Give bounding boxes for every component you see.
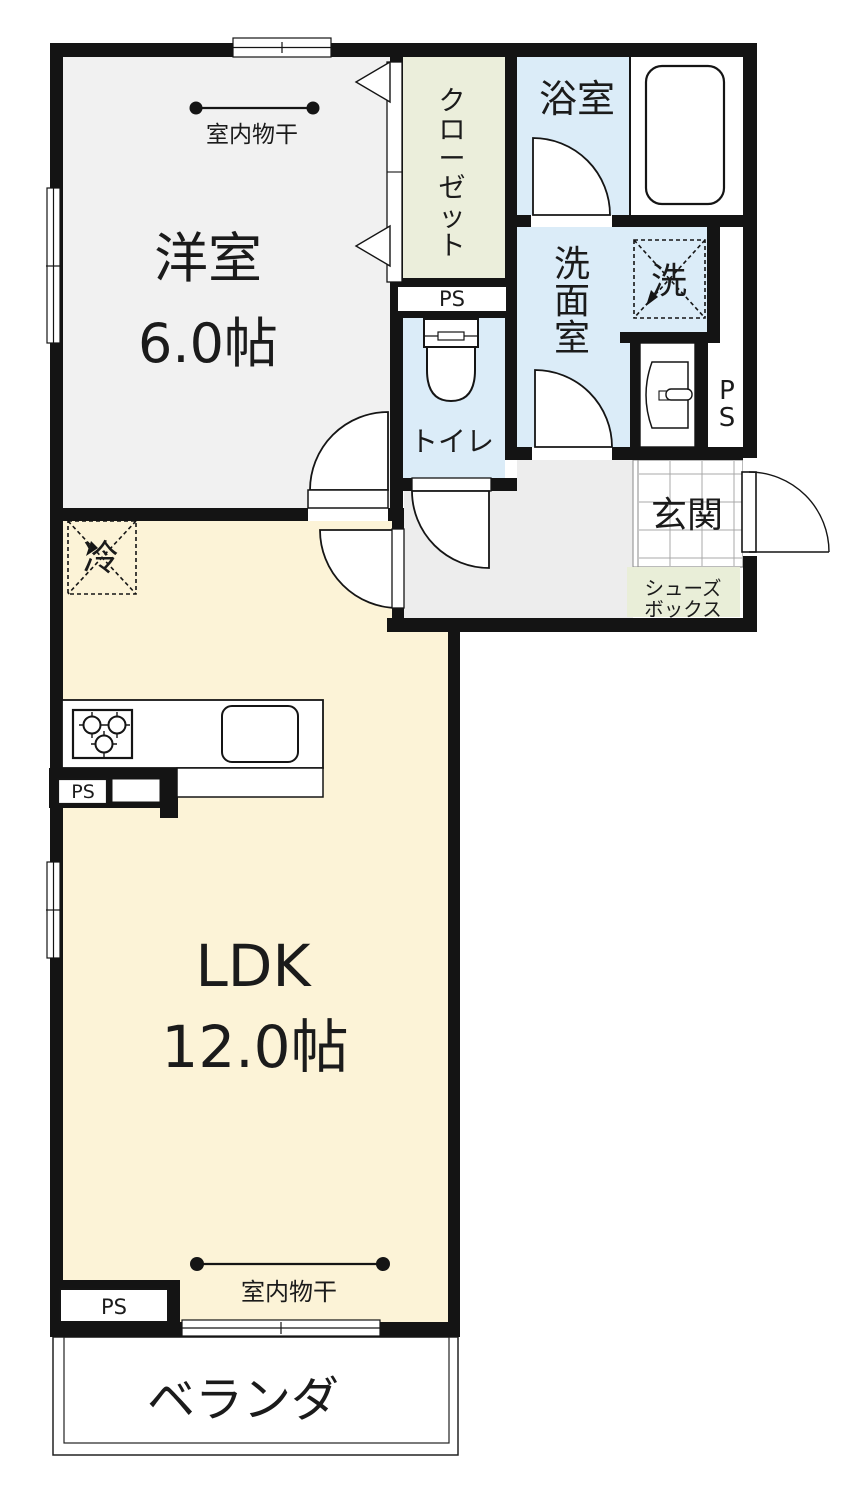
drying-top-label: 室内物干 <box>206 122 298 148</box>
wall-washroom-right <box>707 227 720 343</box>
entrance-step-lines <box>633 460 638 567</box>
floor-plan-svg: 洋室 6.0帖 室内物干 浴室 ク ロ ー ゼ ッ ト 洗 面 室 洗 PS P… <box>0 0 863 1500</box>
bath-door-threshold <box>531 215 612 227</box>
closet-char-5: ッ <box>439 202 466 233</box>
washroom-char-1: 洗 <box>554 244 590 285</box>
wall-vanity-right <box>695 343 708 447</box>
ldk-size-label: 12.0帖 <box>161 1013 348 1081</box>
washroom-label-vertical: 洗 面 室 <box>554 244 590 359</box>
ps-shaft-s-label: S <box>719 403 736 433</box>
wall-kitchen-stub-v <box>160 768 178 818</box>
bedroom-door-threshold <box>308 508 388 521</box>
fridge-label: 冷 <box>83 538 119 579</box>
toilet-label: トイレ <box>410 425 494 458</box>
veranda-label: ベランダ <box>147 1372 339 1428</box>
bedroom-name-label: 洋室 <box>154 227 262 290</box>
closet-char-4: ゼ <box>439 173 466 204</box>
floor-plan-page: 洋室 6.0帖 室内物干 浴室 ク ロ ー ゼ ッ ト 洗 面 室 洗 PS P… <box>0 0 863 1500</box>
wall-top <box>50 43 757 57</box>
closet-char-6: ト <box>439 231 466 262</box>
closet-char-2: ロ <box>439 115 466 146</box>
vanity-icon <box>640 343 695 447</box>
wall-closet-right <box>505 57 517 460</box>
drying-bottom-label: 室内物干 <box>241 1278 337 1306</box>
ps-bottom-label: PS <box>101 1295 127 1319</box>
room-ldk-floor <box>63 521 448 1322</box>
bedroom-door-leaf <box>308 490 388 508</box>
bath-label: 浴室 <box>539 77 615 121</box>
washroom-door-threshold <box>532 447 612 460</box>
toilet-door-leaf <box>412 478 491 491</box>
closet-char-1: ク <box>439 86 466 117</box>
shoebox-label-line2: ボックス <box>644 598 721 621</box>
sink-icon <box>222 706 298 762</box>
entrance-door-swing <box>749 472 829 552</box>
shoebox-label-line1: シューズ <box>644 577 721 600</box>
washer-label: 洗 <box>651 261 687 302</box>
ps-shaft-p-label: P <box>719 376 735 406</box>
toilet-icon <box>424 319 478 401</box>
entrance-label: 玄関 <box>651 495 723 536</box>
ldk-name-label: LDK <box>195 932 312 1000</box>
wall-vanity-left <box>630 343 640 447</box>
ps-kitchen-label: PS <box>71 781 95 803</box>
washroom-char-2: 面 <box>554 281 590 322</box>
bathtub-icon <box>646 66 724 204</box>
entrance-door-leaf <box>742 472 756 552</box>
ps-toilet-label: PS <box>439 287 465 311</box>
wall-ldk-right <box>448 632 460 1337</box>
closet-char-3: ー <box>439 144 466 175</box>
kitchen-niche <box>112 779 160 802</box>
closet-label-vertical: ク ロ ー ゼ ッ ト <box>439 86 466 262</box>
wall-vanity-top <box>620 332 720 343</box>
bedroom-size-label: 6.0帖 <box>138 312 278 375</box>
washroom-char-3: 室 <box>554 318 590 359</box>
ldk-door-leaf <box>392 529 404 608</box>
wall-right-upper <box>743 43 757 460</box>
